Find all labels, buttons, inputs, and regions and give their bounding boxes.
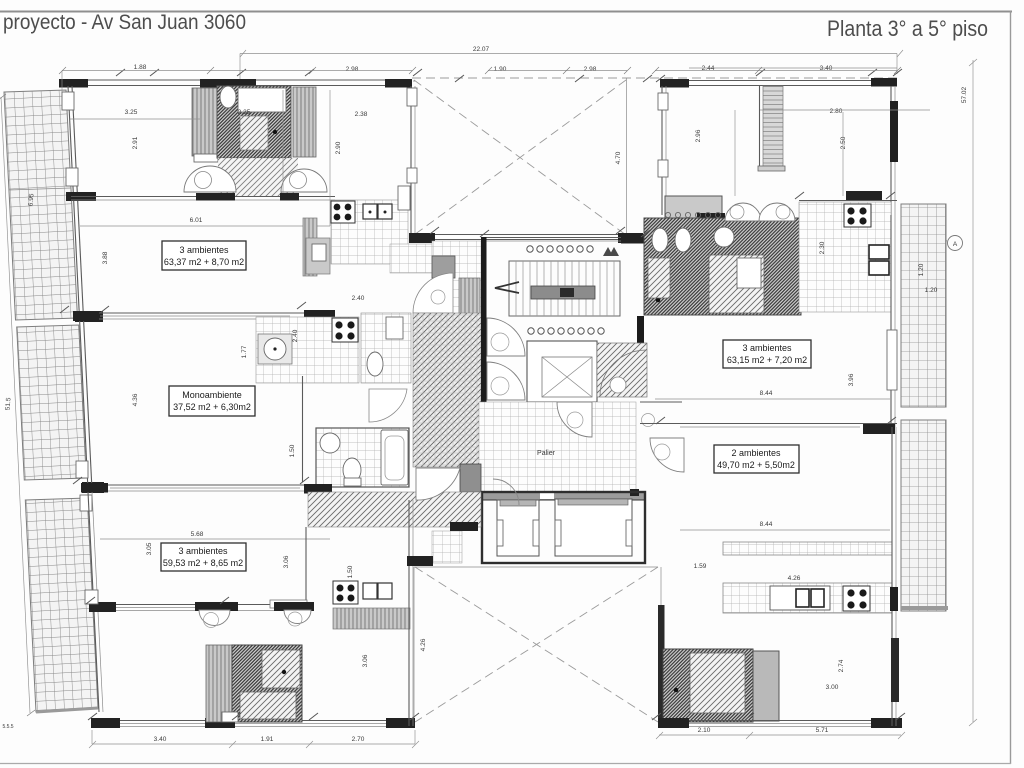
svg-text:2.74: 2.74 xyxy=(838,659,845,672)
svg-text:2.40: 2.40 xyxy=(352,295,365,302)
svg-text:2.10: 2.10 xyxy=(698,727,711,734)
svg-text:2.98: 2.98 xyxy=(584,66,597,73)
svg-text:1.59: 1.59 xyxy=(694,563,707,570)
svg-text:1.20: 1.20 xyxy=(925,287,938,294)
svg-text:2.98: 2.98 xyxy=(346,66,359,73)
svg-text:2.91: 2.91 xyxy=(132,136,139,149)
svg-text:3.06: 3.06 xyxy=(362,654,369,667)
svg-text:6.01: 6.01 xyxy=(190,217,203,224)
svg-text:5.71: 5.71 xyxy=(816,727,829,734)
svg-text:5.68: 5.68 xyxy=(191,531,204,538)
svg-text:51.5: 51.5 xyxy=(5,397,13,410)
svg-text:2.70: 2.70 xyxy=(352,736,365,743)
svg-text:4.70: 4.70 xyxy=(615,151,622,164)
svg-text:1.91: 1.91 xyxy=(261,736,274,743)
svg-text:3 ambientes: 3 ambientes xyxy=(178,546,228,556)
svg-text:3 ambientes: 3 ambientes xyxy=(179,245,229,255)
svg-text:57.02: 57.02 xyxy=(961,86,968,103)
svg-text:3.06: 3.06 xyxy=(283,555,290,568)
svg-text:4.36: 4.36 xyxy=(132,393,139,406)
svg-text:A: A xyxy=(953,241,958,248)
svg-text:1.90: 1.90 xyxy=(494,66,507,73)
svg-text:6.95: 6.95 xyxy=(28,193,36,206)
svg-text:2 ambientes: 2 ambientes xyxy=(731,448,781,458)
svg-text:8.44: 8.44 xyxy=(760,390,773,397)
svg-text:2.44: 2.44 xyxy=(702,65,715,72)
svg-text:3.00: 3.00 xyxy=(826,684,839,691)
svg-text:Palier: Palier xyxy=(537,450,556,457)
svg-text:2.96: 2.96 xyxy=(695,129,702,142)
svg-text:3.40: 3.40 xyxy=(820,65,833,72)
svg-text:3.88: 3.88 xyxy=(102,251,109,264)
svg-text:63,37 m2 + 8,70 m2: 63,37 m2 + 8,70 m2 xyxy=(164,257,244,267)
svg-text:37,52 m2 + 6,30m2: 37,52 m2 + 6,30m2 xyxy=(173,402,251,412)
svg-text:4.26: 4.26 xyxy=(788,575,801,582)
svg-text:63,15 m2 + 7,20 m2: 63,15 m2 + 7,20 m2 xyxy=(727,355,807,365)
svg-text:2.90: 2.90 xyxy=(335,141,342,154)
svg-text:2.30: 2.30 xyxy=(819,241,826,254)
svg-text:proyecto - Av San Juan 3060: proyecto - Av San Juan 3060 xyxy=(3,11,246,34)
svg-text:1.77: 1.77 xyxy=(241,345,248,358)
svg-text:3.40: 3.40 xyxy=(154,736,167,743)
svg-text:49,70 m2 + 5,50m2: 49,70 m2 + 5,50m2 xyxy=(717,460,795,470)
svg-text:1.50: 1.50 xyxy=(347,565,354,578)
svg-text:3.96: 3.96 xyxy=(848,373,855,386)
svg-text:22.07: 22.07 xyxy=(473,46,490,53)
svg-text:2.38: 2.38 xyxy=(355,111,368,118)
svg-text:3.25: 3.25 xyxy=(125,109,138,116)
svg-text:5.5.5: 5.5.5 xyxy=(2,724,13,730)
svg-text:59,53 m2 + 8,65 m2: 59,53 m2 + 8,65 m2 xyxy=(163,558,243,568)
svg-text:1.50: 1.50 xyxy=(289,444,296,457)
svg-text:2.50: 2.50 xyxy=(840,136,847,149)
svg-text:4.26: 4.26 xyxy=(420,638,427,651)
svg-text:2.35: 2.35 xyxy=(238,109,251,116)
svg-text:2.40: 2.40 xyxy=(292,329,299,342)
svg-text:1.88: 1.88 xyxy=(134,64,147,71)
svg-text:2.80: 2.80 xyxy=(830,108,843,115)
svg-text:3.05: 3.05 xyxy=(146,542,153,555)
svg-text:3 ambientes: 3 ambientes xyxy=(742,343,792,353)
svg-text:Monoambiente: Monoambiente xyxy=(182,390,242,400)
svg-text:1.20: 1.20 xyxy=(918,263,925,276)
svg-text:Planta 3° a 5° piso: Planta 3° a 5° piso xyxy=(827,16,988,41)
svg-text:8.44: 8.44 xyxy=(760,521,773,528)
